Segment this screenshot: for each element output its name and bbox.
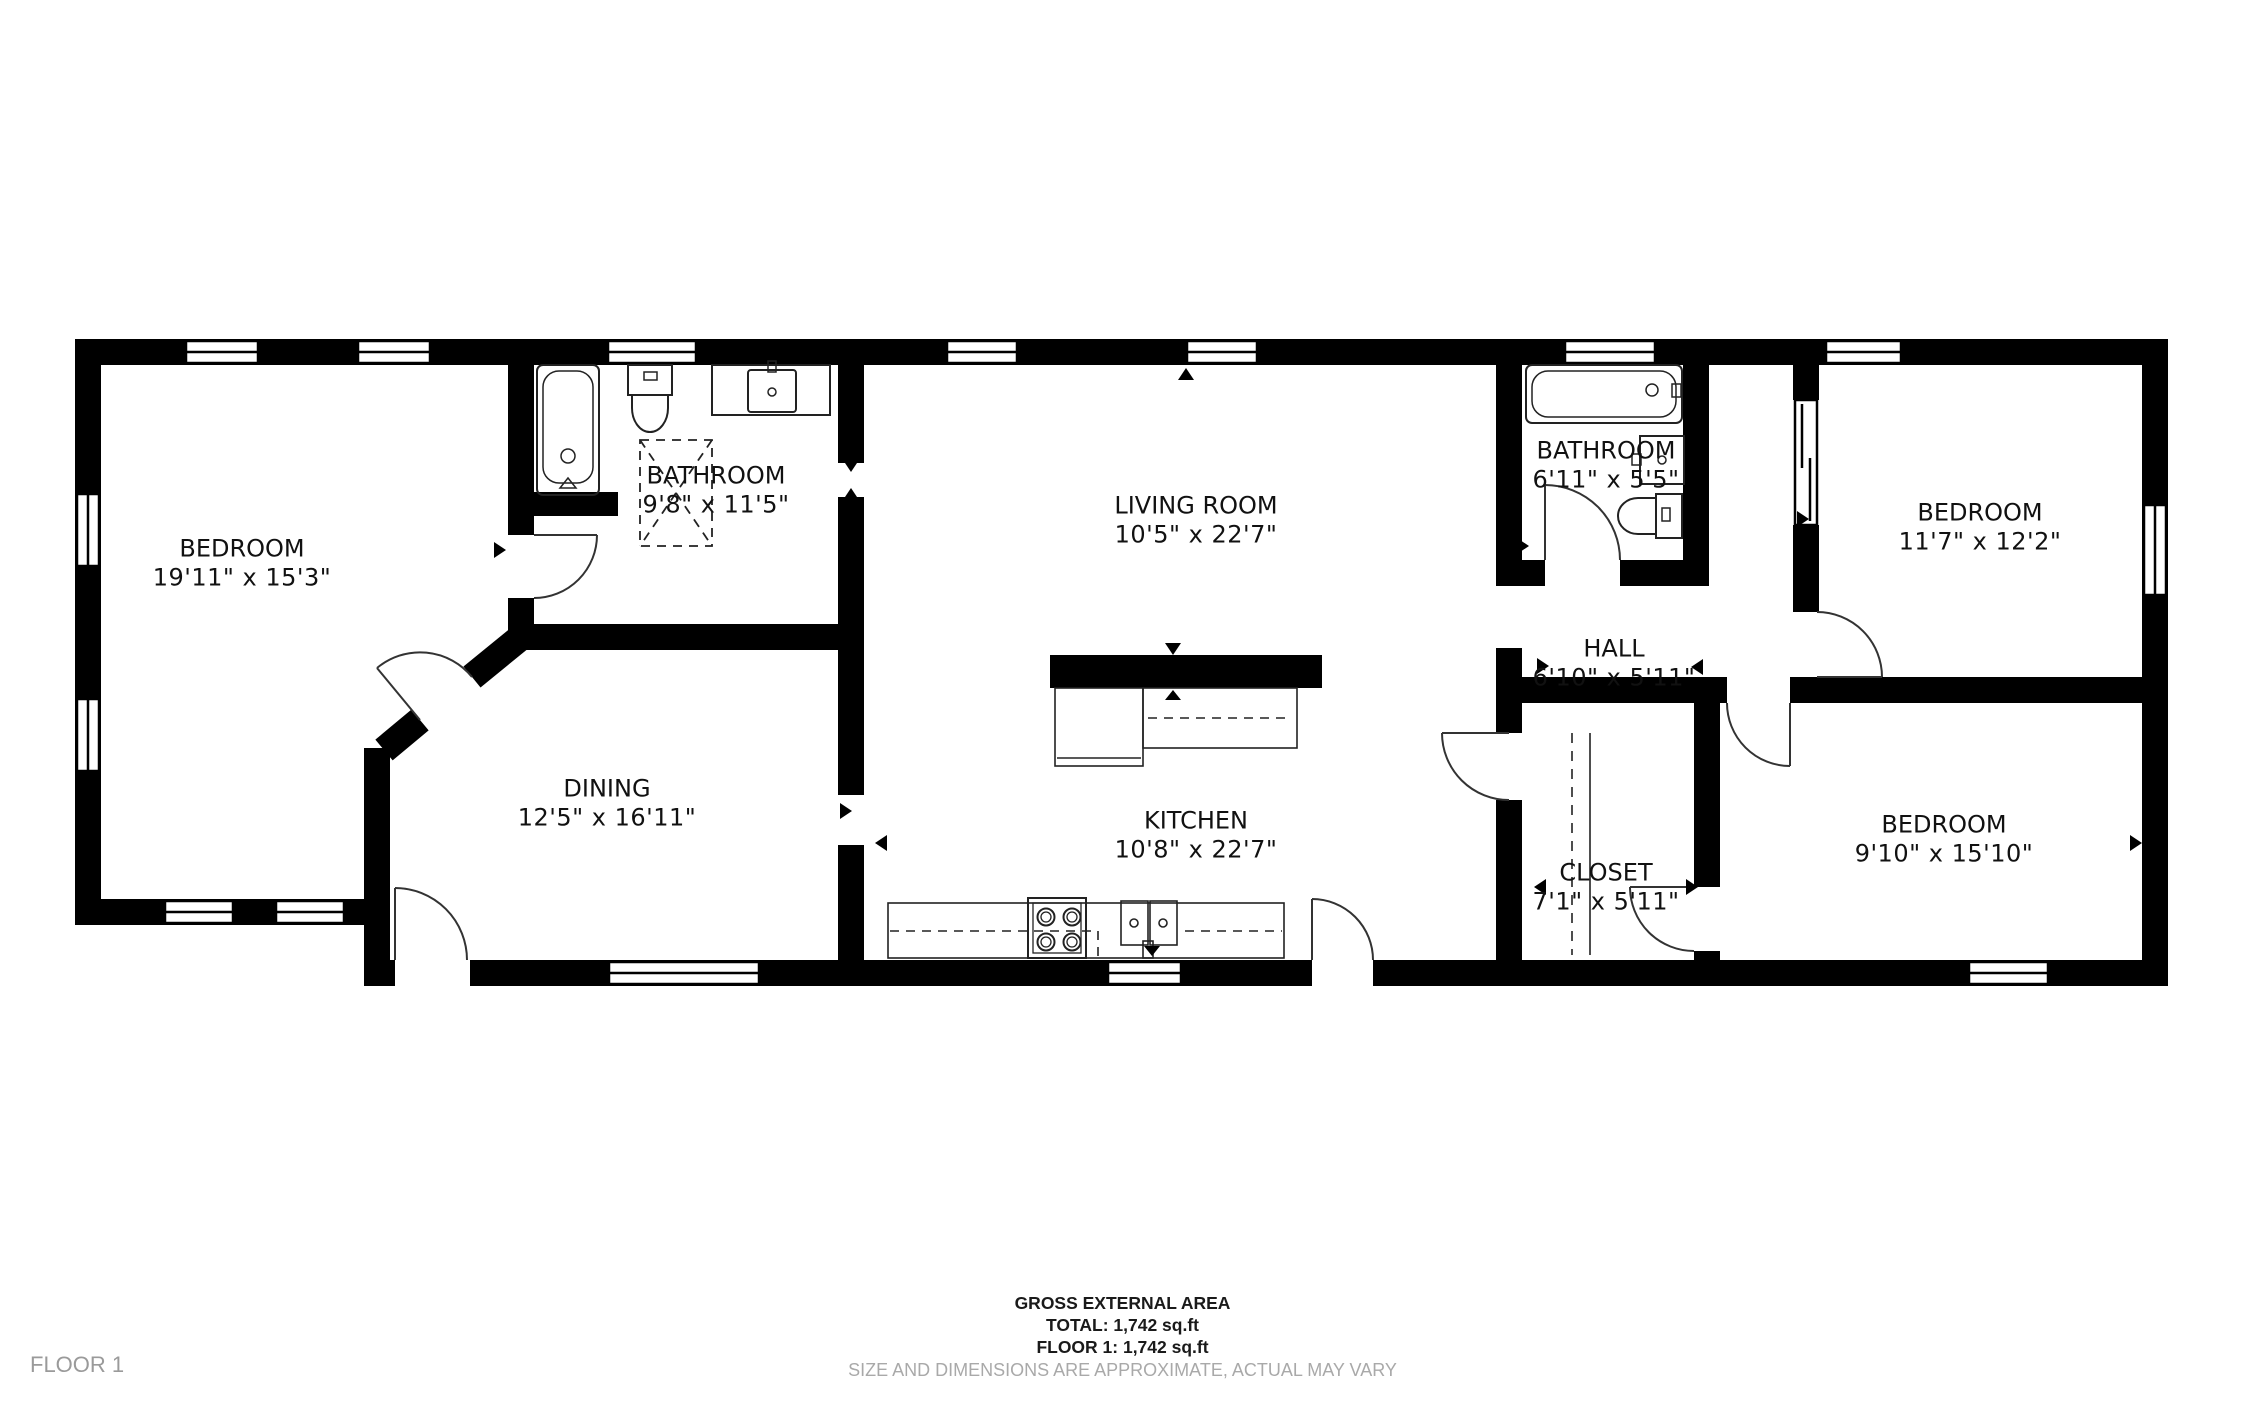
- room-label-living-room: LIVING ROOM 10'5" x 22'7": [1114, 492, 1277, 551]
- window-icon: [186, 341, 258, 363]
- room-name: BATHROOM: [1532, 437, 1679, 466]
- window-icon: [947, 341, 1017, 363]
- room-name: LIVING ROOM: [1114, 492, 1277, 521]
- door-icon: [1817, 612, 1882, 677]
- window-icon: [276, 901, 344, 923]
- room-name: BEDROOM: [153, 535, 332, 564]
- door-icon: [1545, 485, 1620, 560]
- floor1-area-value: FLOOR 1: 1,742 sq.ft: [848, 1336, 1397, 1358]
- room-name: DINING: [518, 775, 697, 804]
- room-dimensions: 12'5" x 16'11": [518, 804, 697, 833]
- room-dimensions: 9'8" x 11'5": [642, 491, 789, 520]
- room-label-bathroom-1: BATHROOM 9'8" x 11'5": [642, 462, 789, 521]
- door-icon: [377, 652, 472, 720]
- window-icon: [1187, 341, 1257, 363]
- sliding-door-icon: [1795, 400, 1817, 525]
- window-icon: [358, 341, 430, 363]
- room-dimensions: 10'5" x 22'7": [1114, 521, 1277, 550]
- window-icon: [165, 901, 233, 923]
- room-label-bedroom-3: BEDROOM 9'10" x 15'10": [1855, 811, 2034, 870]
- room-dimensions: 6'11" x 5'5": [1532, 466, 1679, 495]
- door-icon: [1727, 703, 1790, 766]
- room-label-closet: CLOSET 7'1" x 5'11": [1532, 859, 1679, 918]
- area-summary: GROSS EXTERNAL AREA TOTAL: 1,742 sq.ft F…: [848, 1292, 1397, 1382]
- room-label-dining: DINING 12'5" x 16'11": [518, 775, 697, 834]
- room-dimensions: 9'10" x 15'10": [1855, 840, 2034, 869]
- window-icon: [1108, 962, 1181, 984]
- sink-icon: [712, 361, 830, 415]
- room-dimensions: 7'1" x 5'11": [1532, 888, 1679, 917]
- window-icon: [609, 962, 759, 984]
- room-label-bedroom-2: BEDROOM 11'7" x 12'2": [1899, 499, 2062, 558]
- window-icon: [1969, 962, 2048, 984]
- room-label-bedroom-1: BEDROOM 19'11" x 15'3": [153, 535, 332, 594]
- bathtub-icon: [1526, 365, 1682, 423]
- toilet-icon: [628, 365, 672, 432]
- room-name: BATHROOM: [642, 462, 789, 491]
- window-icon: [2144, 505, 2166, 595]
- interior-walls: [384, 339, 2168, 986]
- size-disclaimer: SIZE AND DIMENSIONS ARE APPROXIMATE, ACT…: [848, 1359, 1397, 1382]
- closet-rod: [1572, 733, 1590, 955]
- room-label-bathroom-2: BATHROOM 6'11" x 5'5": [1532, 437, 1679, 496]
- room-label-kitchen: KITCHEN 10'8" x 22'7": [1115, 807, 1278, 866]
- door-icon: [1312, 899, 1373, 960]
- room-name: BEDROOM: [1855, 811, 2034, 840]
- room-dimensions: 19'11" x 15'3": [153, 564, 332, 593]
- door-icon: [395, 888, 467, 960]
- window-icon: [1565, 341, 1655, 363]
- room-name: BEDROOM: [1899, 499, 2062, 528]
- floor-number-label: FLOOR 1: [30, 1352, 124, 1378]
- window-icon: [1826, 341, 1901, 363]
- stove-icon: [1028, 898, 1086, 958]
- total-area-value: TOTAL: 1,742 sq.ft: [848, 1314, 1397, 1336]
- room-label-hall: HALL 6'10" x 5'11": [1533, 635, 1696, 694]
- window-icon: [77, 494, 99, 566]
- room-dimensions: 11'7" x 12'2": [1899, 528, 2062, 557]
- bathtub-icon: [537, 365, 599, 495]
- window-icon: [77, 699, 99, 771]
- floorplan-page: BEDROOM 19'11" x 15'3" BATHROOM 9'8" x 1…: [0, 0, 2245, 1402]
- window-icon: [608, 341, 696, 363]
- floorplan-drawing: [0, 0, 2245, 1402]
- gross-external-area-label: GROSS EXTERNAL AREA: [848, 1292, 1397, 1314]
- door-icon: [534, 535, 597, 598]
- room-name: CLOSET: [1532, 859, 1679, 888]
- door-icon: [1442, 733, 1509, 800]
- room-dimensions: 10'8" x 22'7": [1115, 836, 1278, 865]
- room-name: KITCHEN: [1115, 807, 1278, 836]
- room-name: HALL: [1533, 635, 1696, 664]
- room-dimensions: 6'10" x 5'11": [1533, 664, 1696, 693]
- toilet-icon: [1618, 494, 1682, 538]
